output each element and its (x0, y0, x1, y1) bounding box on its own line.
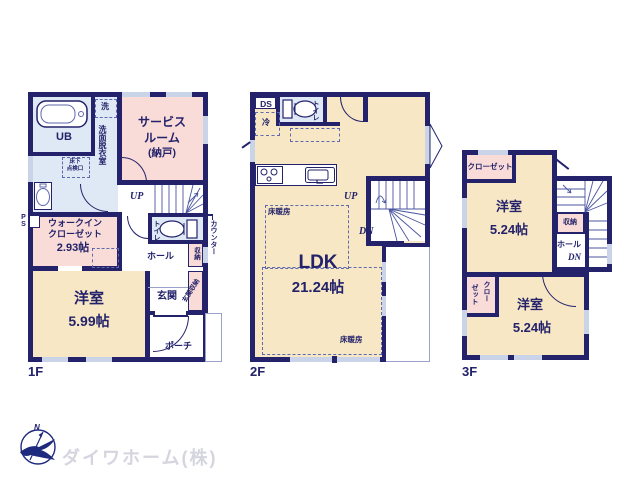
hall-label-3f: ホール (557, 241, 581, 249)
bathtub-icon (36, 100, 88, 128)
wall (363, 92, 368, 122)
western-room-1f-label: 洋室 (74, 291, 104, 306)
window (203, 247, 208, 263)
stove-icon (257, 166, 283, 184)
service-room-label-2: ルーム (144, 132, 180, 144)
entrance-label: 玄関 (157, 292, 177, 302)
floor-plan-canvas: UB 洗 洗面脱衣室 床下 点検口 サービス ルーム (納戸) UP トイレ カ… (0, 0, 640, 480)
step-line (148, 287, 188, 288)
window (290, 357, 333, 362)
wall (495, 277, 499, 317)
window (337, 357, 380, 362)
pipe-space-label: PS (20, 214, 27, 228)
washroom-label: 洗面脱衣室 (98, 125, 106, 165)
ldk-size-label: 21.24帖 (292, 280, 345, 295)
hatch1-line1: 床下 (69, 160, 80, 166)
floor2-label: 2F (250, 365, 265, 378)
window (382, 296, 386, 316)
western-room-3f-2-label: 洋室 (517, 298, 543, 311)
toilet-counter-space (290, 128, 340, 142)
western-room-3f-1-size: 5.24帖 (490, 223, 528, 236)
wall (33, 212, 122, 217)
western-room-3f-2-size: 5.24帖 (513, 321, 551, 334)
toilet-label-2f: トイレ (312, 100, 319, 121)
door-leaf (153, 315, 188, 317)
window (86, 357, 112, 362)
unit-bath-label: UB (56, 132, 72, 143)
kitchen-sink-icon (305, 167, 335, 183)
window (462, 198, 467, 228)
wall (323, 97, 327, 122)
western-room-1f-size: 5.99帖 (68, 314, 109, 328)
wic-label-1: ウォークイン (48, 219, 102, 228)
door-opening (58, 266, 82, 271)
casement-window-icon (430, 124, 444, 168)
floor3-label: 3F (462, 365, 477, 378)
balcony (386, 246, 430, 362)
window (478, 150, 508, 155)
window (122, 92, 150, 97)
toilet-label-1f: トイレ (153, 220, 160, 241)
window (514, 355, 542, 360)
stairs-down-label-2f: DN (359, 227, 373, 237)
stairs-1f (148, 185, 203, 213)
storage-label-1f: 収納 (192, 247, 199, 260)
closet-bottom-label-col1: クロー (483, 281, 490, 302)
wic-size-label: 2.93帖 (57, 243, 89, 254)
company-name: ダイワホーム(株) (62, 444, 217, 470)
western-room-3f-1-label: 洋室 (496, 200, 522, 213)
wic-label-2: クローゼット (48, 230, 102, 239)
hatch1-line2: 点検口 (67, 167, 84, 173)
porch-step (205, 313, 222, 362)
window (42, 357, 68, 362)
window (203, 116, 208, 144)
storage-label-3f: 収納 (563, 219, 577, 226)
window (382, 262, 386, 282)
fridge-label: 冷 (262, 119, 270, 127)
closet-bottom-label-col2: ゼット (471, 284, 478, 305)
toilet-icon-1f (155, 219, 199, 239)
window (166, 92, 192, 97)
closet-top-label: クローゼット (468, 163, 513, 171)
washer-label: 洗 (101, 103, 109, 111)
stairs-down-label-3f: DN (568, 253, 581, 262)
stairs-up-label-1f: UP (130, 192, 143, 202)
window-mullion (332, 356, 337, 363)
floor1-label: 1F (28, 365, 43, 378)
duct-space-label: DS (260, 100, 272, 109)
wall (467, 179, 516, 183)
counter-label: カウンター (210, 220, 217, 255)
vanity-sink-icon (34, 182, 52, 210)
service-room-label-1: サービス (138, 116, 186, 128)
floor-heating-label-1: 床暖房 (268, 208, 291, 216)
stairs-2f (371, 181, 425, 241)
wall (276, 122, 340, 126)
wall (382, 243, 430, 247)
service-room-label-3: (納戸) (148, 148, 176, 159)
ldk-label: LDK (298, 253, 337, 272)
stairs-up-label-2f: UP (344, 192, 357, 202)
pipe-space-box (29, 215, 40, 228)
window (462, 310, 467, 336)
wall (33, 152, 95, 156)
compass-n-label: N (34, 424, 40, 432)
counter-bracket (212, 214, 214, 220)
window (480, 355, 508, 360)
window (28, 156, 33, 182)
floor-hatch-2 (92, 248, 119, 268)
window (250, 140, 255, 162)
floor-heating-label-2: 床暖房 (340, 336, 363, 344)
window (584, 310, 589, 334)
wall (148, 213, 203, 217)
porch-label: ポーチ (165, 342, 192, 351)
hall-label-1f: ホール (147, 252, 174, 261)
wall (186, 311, 203, 315)
window (607, 244, 612, 264)
wall (467, 313, 499, 317)
